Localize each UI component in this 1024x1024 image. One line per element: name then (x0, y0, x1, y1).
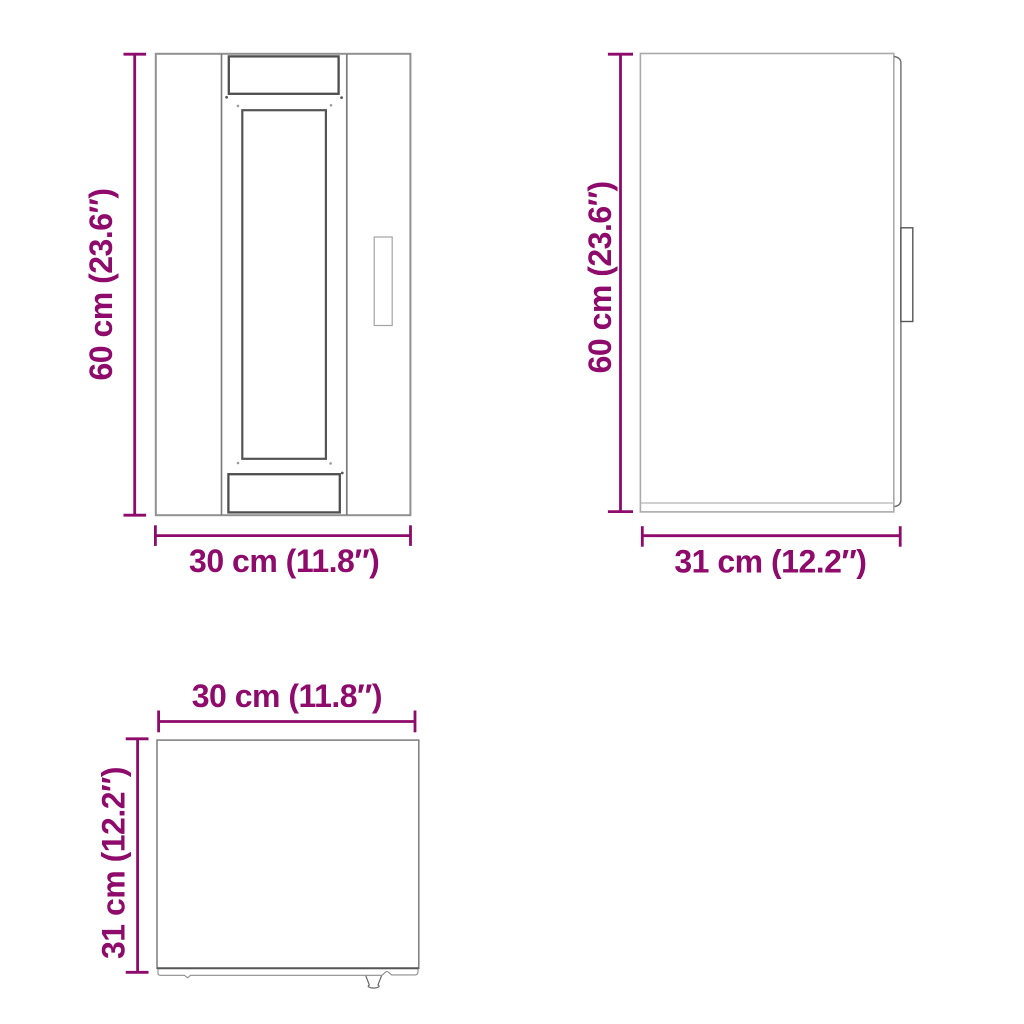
svg-text:30 cm (11.8″): 30 cm (11.8″) (189, 543, 379, 579)
svg-text:31 cm (12.2″): 31 cm (12.2″) (96, 767, 132, 959)
svg-text:60 cm (23.6″): 60 cm (23.6″) (83, 188, 119, 380)
svg-text:60 cm (23.6″): 60 cm (23.6″) (582, 181, 618, 373)
svg-text:31 cm (12.2″): 31 cm (12.2″) (674, 544, 866, 580)
svg-text:30 cm (11.8″): 30 cm (11.8″) (192, 678, 382, 714)
